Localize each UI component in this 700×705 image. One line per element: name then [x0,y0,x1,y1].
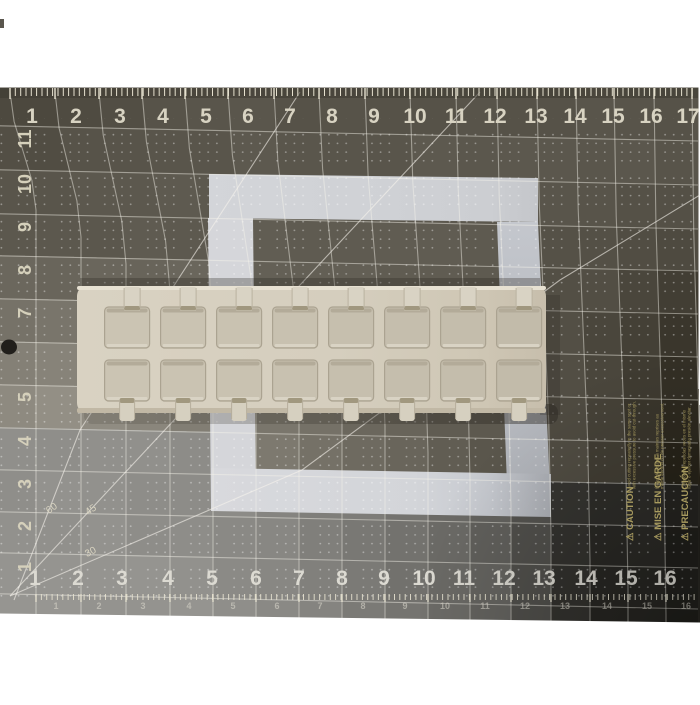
svg-text:11: 11 [15,129,35,148]
svg-text:12: 12 [483,105,506,128]
svg-text:15: 15 [601,105,625,128]
svg-text:7: 7 [293,567,305,590]
svg-text:14: 14 [563,105,587,128]
svg-text:8: 8 [336,567,348,590]
svg-text:10: 10 [403,105,426,128]
svg-text:13: 13 [524,105,547,128]
svg-text:17: 17 [676,105,699,128]
svg-text:16: 16 [639,105,662,128]
svg-text:2: 2 [72,567,84,590]
svg-text:9: 9 [378,567,390,590]
svg-text:10: 10 [15,174,35,194]
svg-text:1: 1 [53,601,58,611]
svg-text:7: 7 [284,105,296,128]
svg-text:with excessive pressure to avo: with excessive pressure to avoid cut-thr… [632,401,637,489]
svg-text:5: 5 [206,567,218,590]
svg-text:⚠ CAUTION: ⚠ CAUTION [625,486,636,541]
svg-text:4: 4 [15,436,35,446]
svg-text:5: 5 [230,601,235,611]
svg-text:3: 3 [140,601,145,611]
svg-text:6: 6 [274,601,279,611]
svg-text:9: 9 [368,105,380,128]
svg-text:7: 7 [15,308,35,318]
svg-text:9: 9 [402,601,407,611]
svg-text:1: 1 [29,567,41,590]
svg-text:4: 4 [157,105,169,128]
svg-text:3: 3 [114,105,126,128]
svg-text:4: 4 [186,601,191,611]
svg-text:8: 8 [326,105,338,128]
svg-text:8: 8 [360,601,365,611]
svg-text:lugar o ejercer demasiada pres: lugar o ejercer demasiada presión alevit… [687,406,692,489]
svg-text:3: 3 [15,479,35,489]
svg-text:3: 3 [116,567,128,590]
svg-text:1: 1 [26,105,38,128]
svg-text:7: 7 [317,601,322,611]
svg-text:8: 8 [15,265,35,275]
svg-text:5: 5 [15,392,35,402]
svg-text:même endroit ou de presser exc: même endroit ou de presser excessivement… [660,403,665,489]
svg-text:6: 6 [250,567,262,590]
svg-text:4: 4 [162,567,174,590]
svg-text:2: 2 [15,521,35,531]
svg-text:6: 6 [242,105,254,128]
svg-text:2: 2 [96,601,101,611]
svg-text:2: 2 [70,105,82,128]
svg-text:5: 5 [200,105,212,128]
svg-text:11: 11 [445,105,468,128]
svg-text:9: 9 [15,222,35,232]
